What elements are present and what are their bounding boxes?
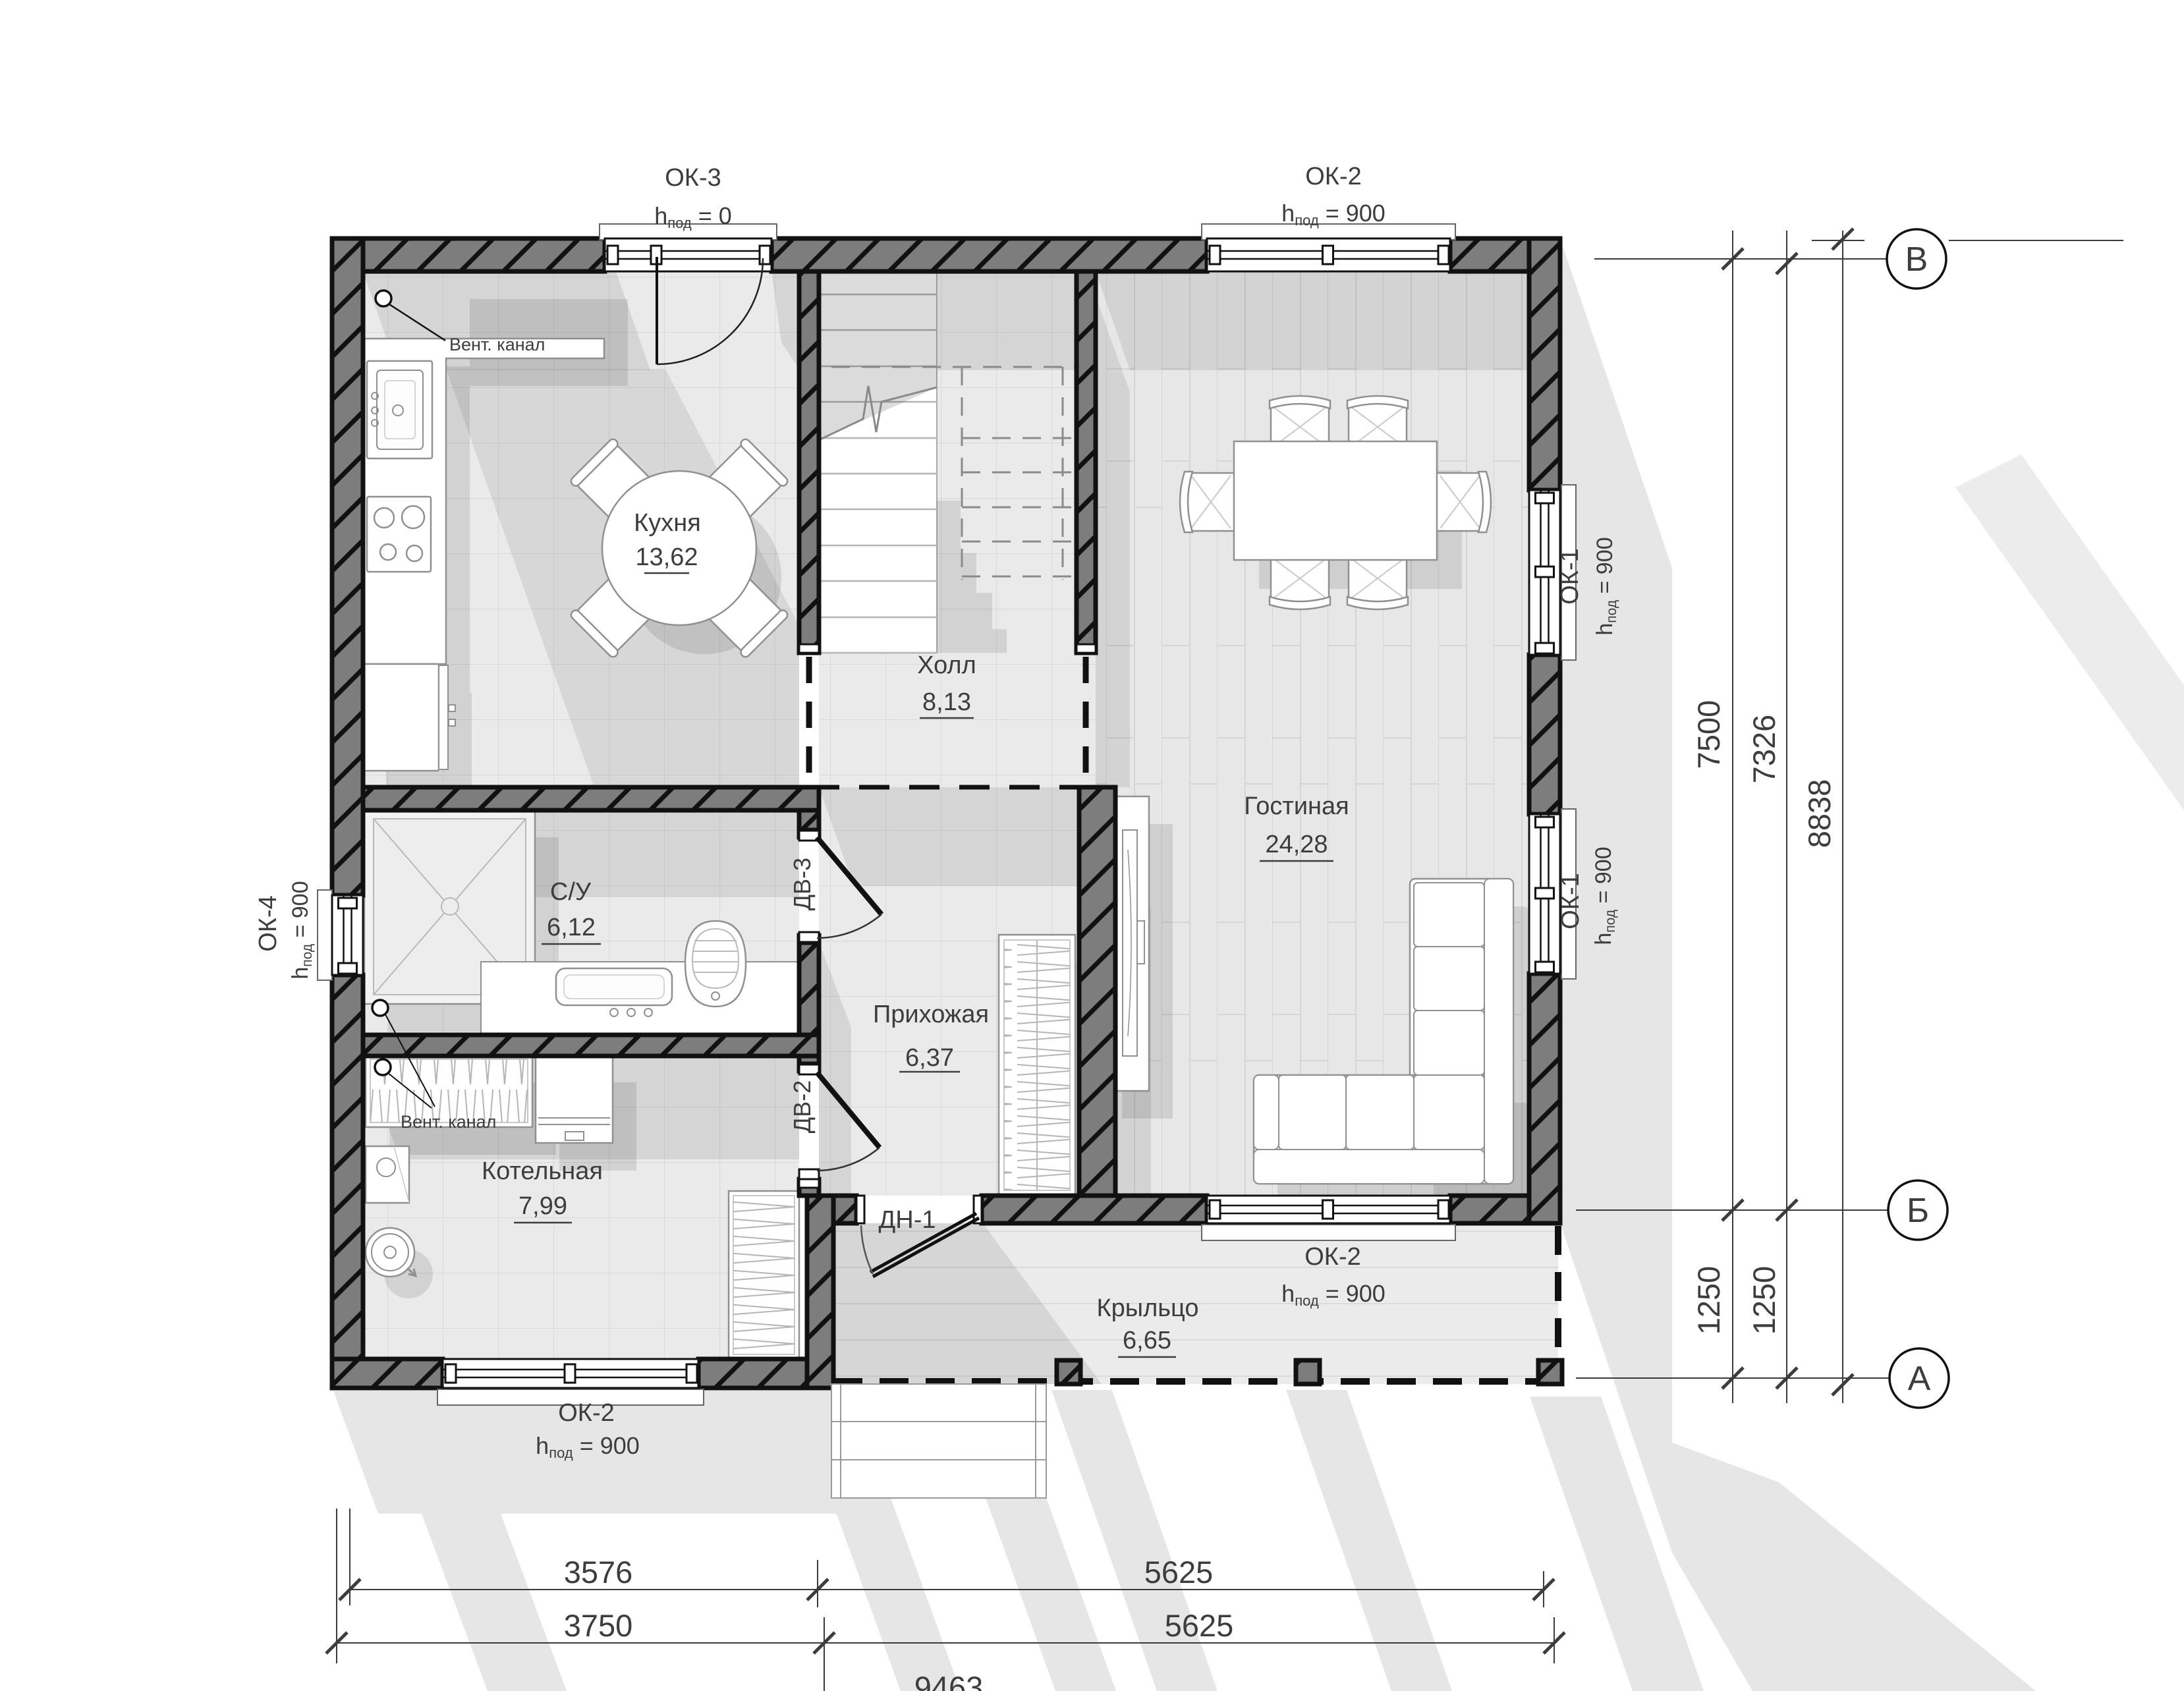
svg-text:7500: 7500	[1691, 700, 1726, 769]
svg-text:ОК-2: ОК-2	[558, 1399, 614, 1427]
svg-text:Крыльцо: Крыльцо	[1096, 1294, 1198, 1322]
svg-text:ОК-1: ОК-1	[1556, 548, 1584, 604]
svg-text:Б: Б	[1907, 1192, 1929, 1230]
svg-text:С/У: С/У	[550, 878, 592, 906]
svg-text:1250: 1250	[1747, 1266, 1781, 1335]
svg-text:Вент. канал: Вент. канал	[401, 1112, 496, 1132]
svg-text:ОК-2: ОК-2	[1305, 163, 1361, 190]
svg-text:ОК-2: ОК-2	[1304, 1243, 1360, 1271]
svg-text:5625: 5625	[1144, 1555, 1214, 1590]
svg-text:8,13: 8,13	[922, 688, 971, 716]
svg-text:Вент. канал: Вент. канал	[449, 335, 545, 354]
svg-text:Котельная: Котельная	[482, 1157, 603, 1185]
svg-text:9463: 9463	[914, 1670, 984, 1691]
svg-text:Гостиная: Гостиная	[1244, 792, 1349, 820]
svg-text:1250: 1250	[1691, 1266, 1726, 1335]
svg-text:3576: 3576	[564, 1555, 633, 1590]
svg-text:В: В	[1905, 240, 1928, 279]
svg-text:8838: 8838	[1802, 779, 1837, 848]
svg-text:ДВ-2: ДВ-2	[789, 1080, 816, 1133]
svg-text:ОК-1: ОК-1	[1557, 873, 1584, 929]
svg-text:6,65: 6,65	[1123, 1327, 1171, 1354]
svg-text:7,99: 7,99	[518, 1192, 567, 1220]
svg-text:ДН-1: ДН-1	[879, 1206, 936, 1234]
svg-text:ОК-3: ОК-3	[665, 164, 721, 192]
svg-text:Холл: Холл	[917, 651, 976, 679]
svg-text:24,28: 24,28	[1265, 831, 1328, 858]
svg-text:ОК-4: ОК-4	[254, 895, 282, 951]
svg-text:ДВ-3: ДВ-3	[789, 858, 816, 910]
svg-text:7326: 7326	[1747, 715, 1781, 784]
svg-text:6,37: 6,37	[905, 1044, 954, 1072]
svg-text:hпод = 0: hпод = 0	[654, 202, 732, 231]
svg-text:5625: 5625	[1165, 1608, 1234, 1643]
svg-text:6,12: 6,12	[547, 914, 596, 941]
svg-text:13,62: 13,62	[635, 543, 698, 571]
svg-text:А: А	[1908, 1360, 1931, 1398]
svg-text:Прихожая: Прихожая	[873, 1001, 989, 1028]
svg-text:3750: 3750	[564, 1608, 633, 1643]
svg-text:Кухня: Кухня	[634, 509, 701, 537]
